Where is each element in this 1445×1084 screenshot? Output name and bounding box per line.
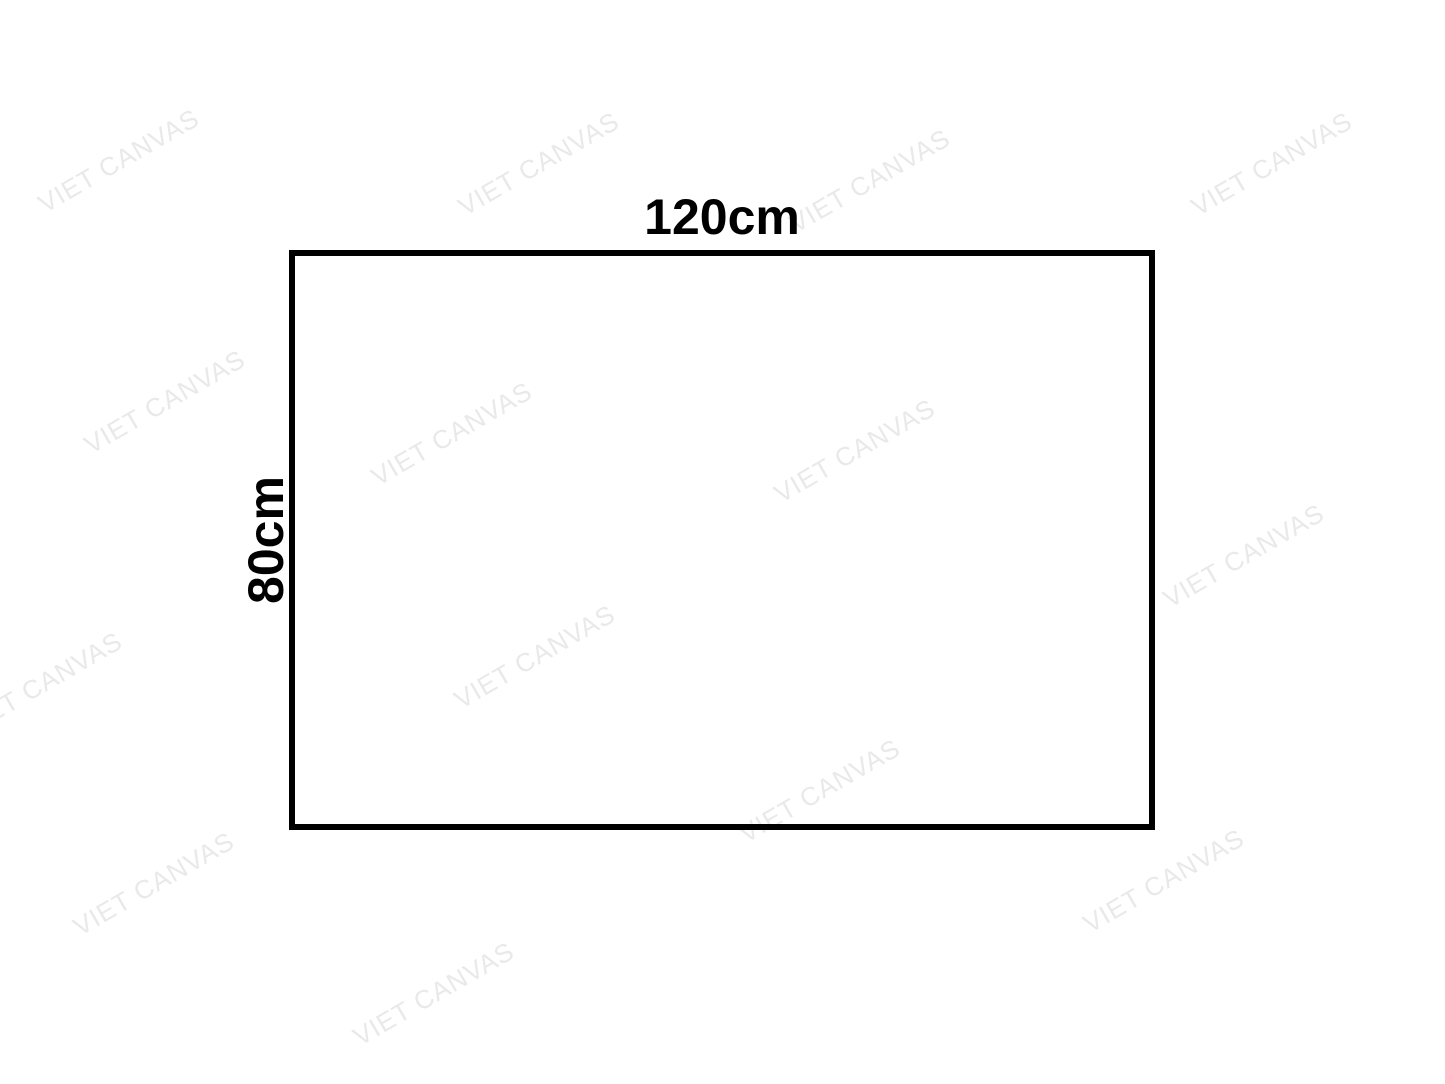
height-dimension-label: 80cm xyxy=(241,476,291,604)
watermark-text: VIET CANVAS xyxy=(349,937,518,1050)
watermark-text: VIET CANVAS xyxy=(1159,499,1328,612)
canvas-rectangle-outline xyxy=(289,250,1155,830)
watermark-text: VIET CANVAS xyxy=(1187,107,1356,220)
canvas-size-diagram: VIET CANVASVIET CANVASVIET CANVASVIET CA… xyxy=(0,0,1445,1084)
watermark-text: VIET CANVAS xyxy=(34,104,203,217)
watermark-text: VIET CANVAS xyxy=(80,345,249,458)
watermark-text: VIET CANVAS xyxy=(0,627,126,740)
width-dimension-label: 120cm xyxy=(289,192,1155,242)
watermark-text: VIET CANVAS xyxy=(69,827,238,940)
watermark-text: VIET CANVAS xyxy=(1079,824,1248,937)
